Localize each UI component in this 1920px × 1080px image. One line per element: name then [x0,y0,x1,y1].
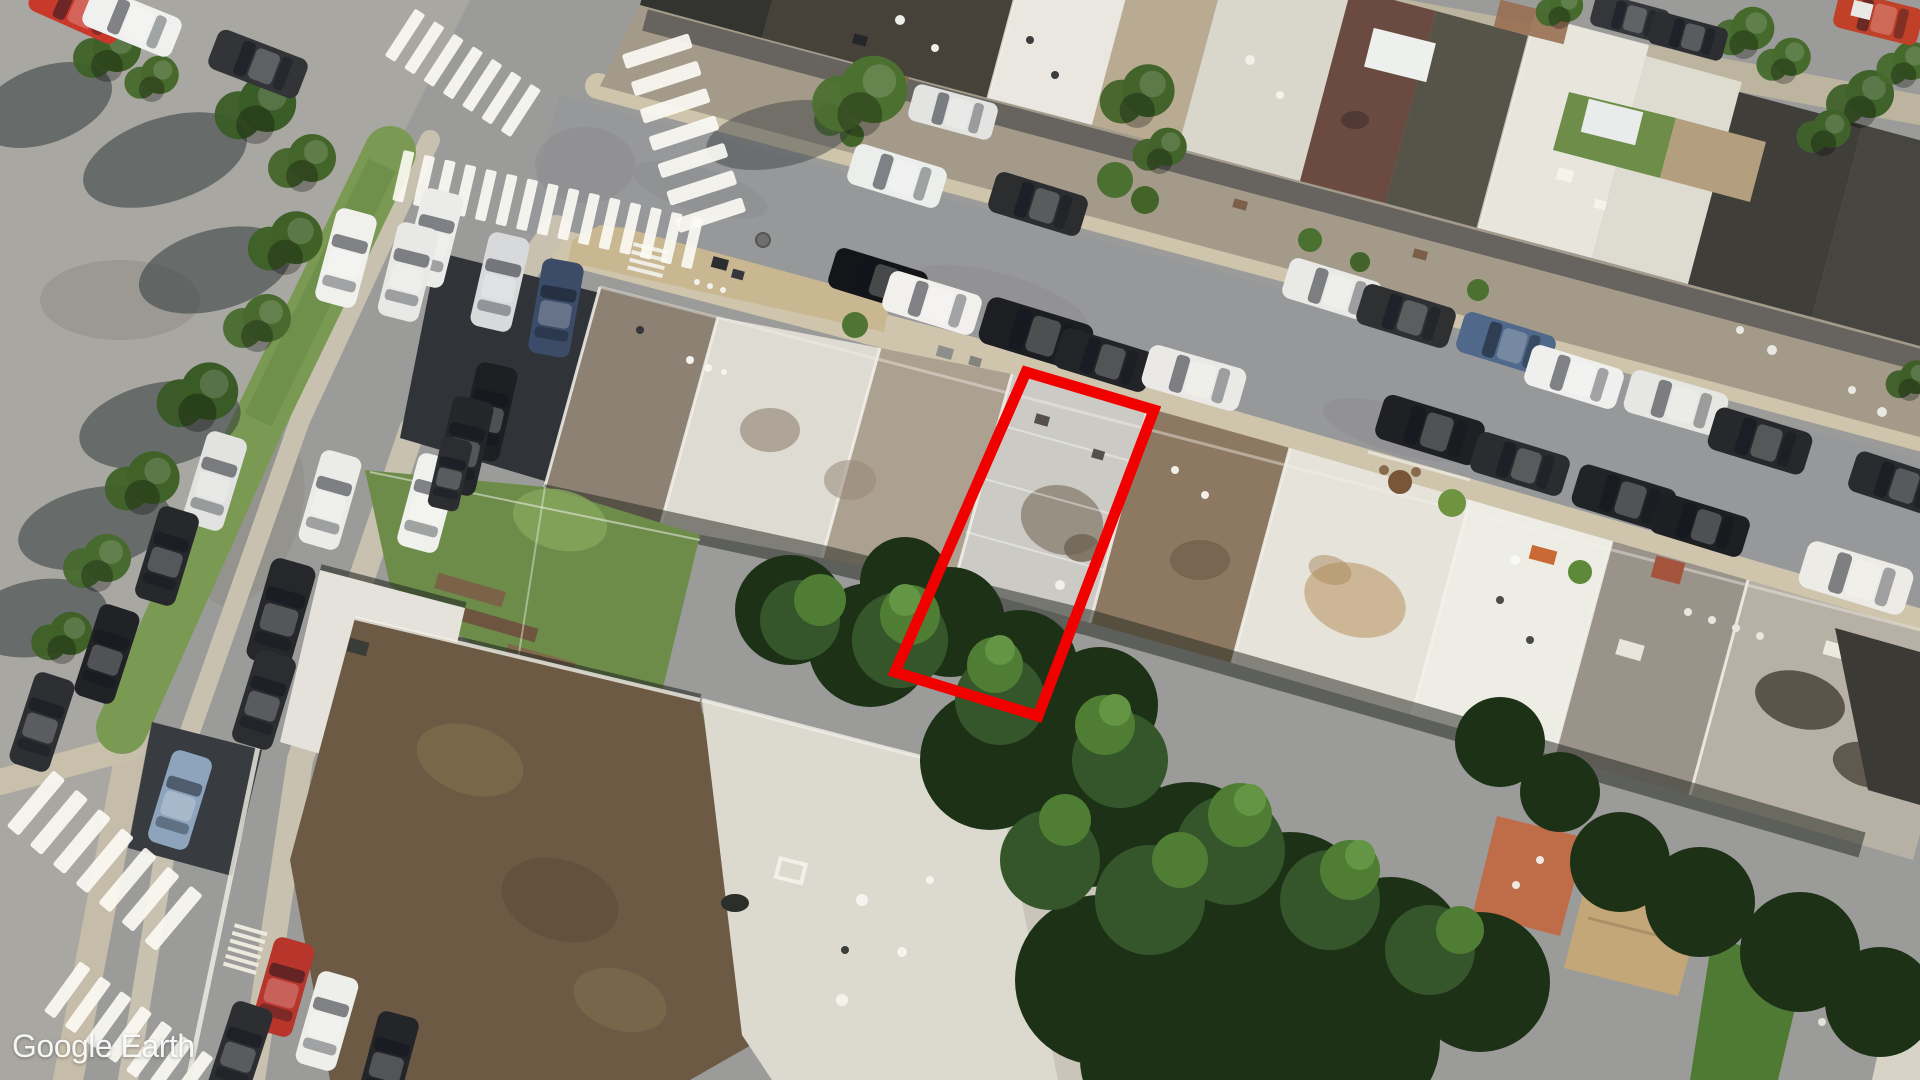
google-earth-watermark: Google Earth [12,1028,195,1065]
map-viewport[interactable]: Google Earth [0,0,1920,1080]
aerial-imagery[interactable] [0,0,1920,1080]
